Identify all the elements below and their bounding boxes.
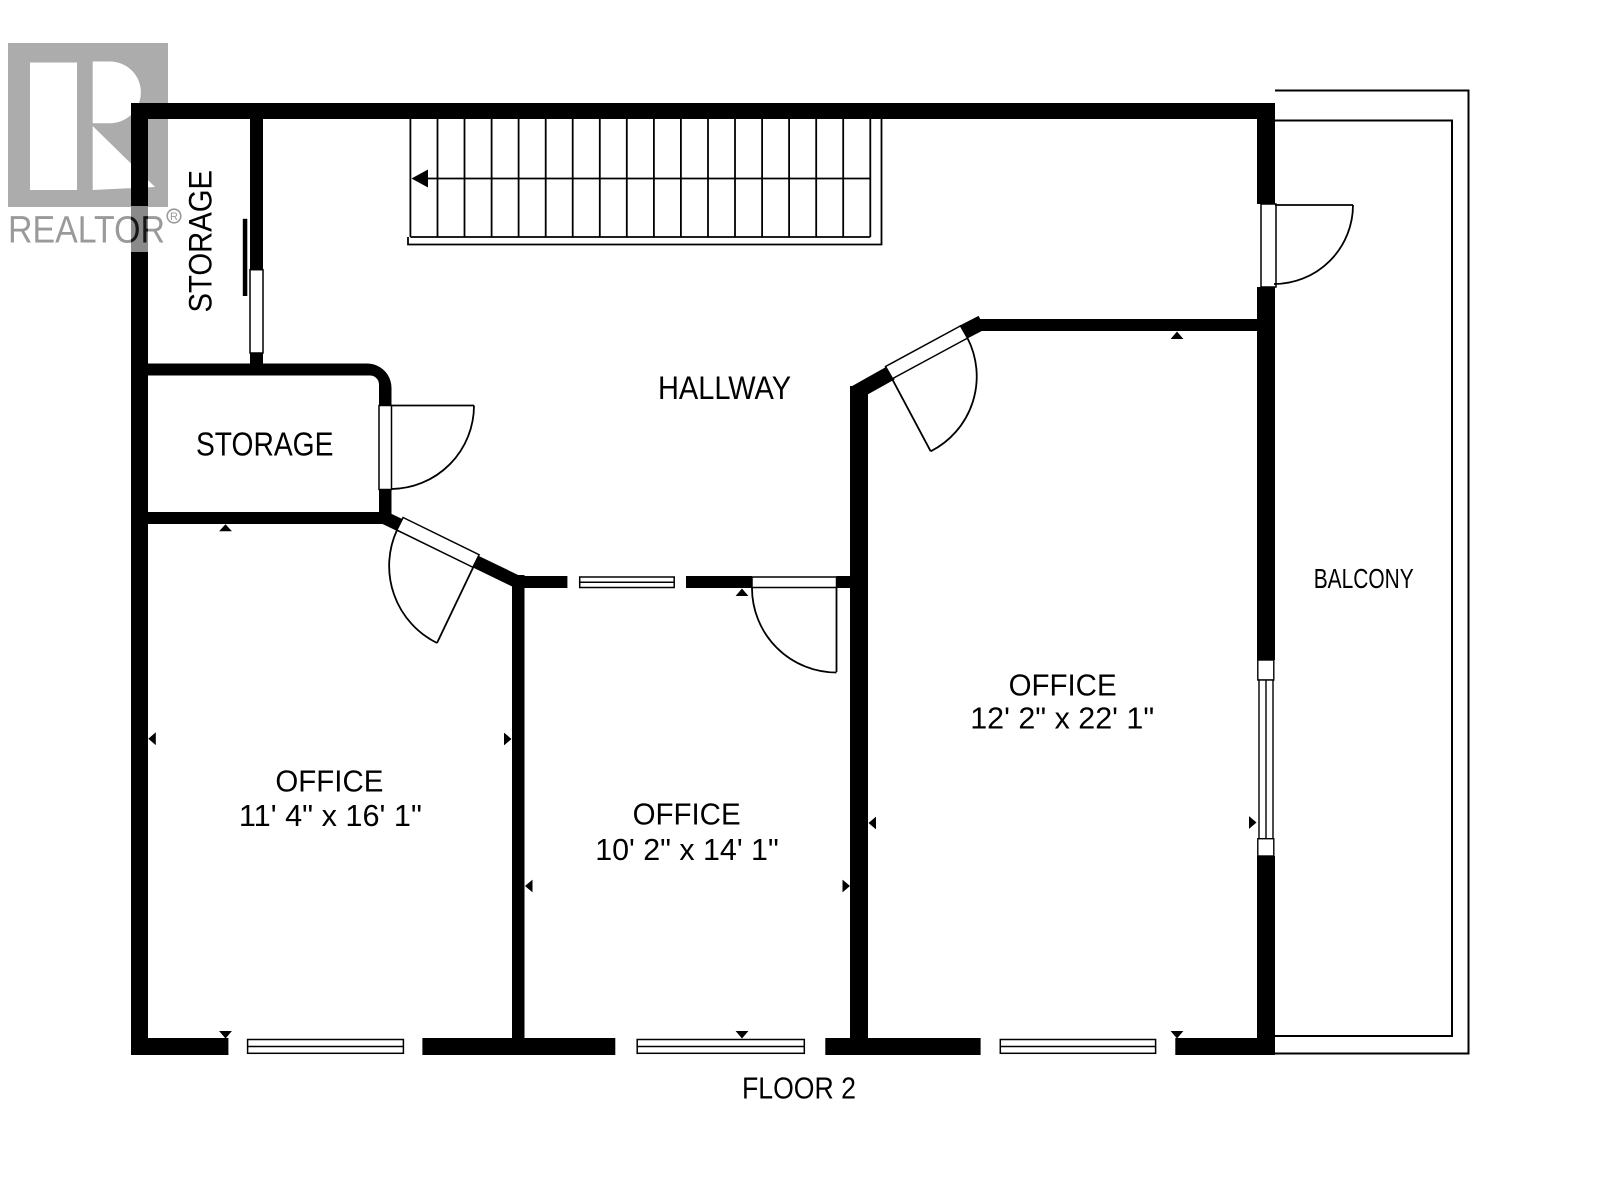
svg-text:FLOOR 2: FLOOR 2 [742,1071,856,1106]
svg-text:BALCONY: BALCONY [1314,563,1414,594]
svg-text:11' 4" x 16' 1": 11' 4" x 16' 1" [239,798,422,833]
svg-text:OFFICE: OFFICE [275,764,383,799]
svg-text:12' 2" x 22' 1": 12' 2" x 22' 1" [970,701,1154,736]
svg-text:R: R [170,211,178,223]
svg-text:OFFICE: OFFICE [1009,668,1117,703]
svg-text:OFFICE: OFFICE [633,797,741,832]
svg-text:STORAGE: STORAGE [196,427,334,464]
svg-text:HALLWAY: HALLWAY [658,370,791,406]
svg-text:STORAGE: STORAGE [183,170,219,313]
svg-text:10' 2" x 14' 1": 10' 2" x 14' 1" [595,832,779,867]
